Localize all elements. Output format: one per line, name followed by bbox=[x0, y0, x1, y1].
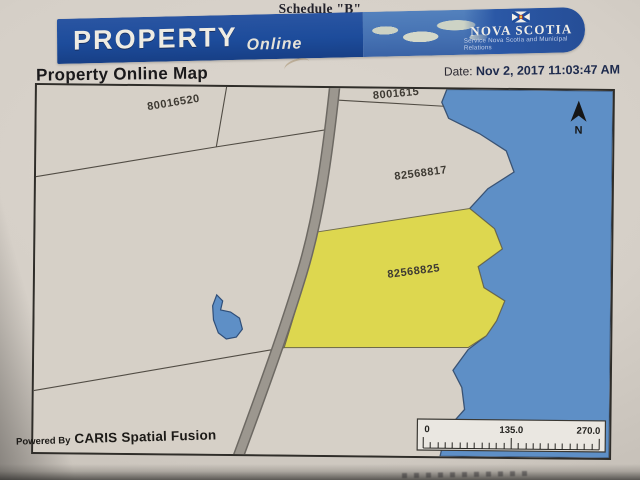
date-label: Date: bbox=[444, 64, 473, 78]
clipped-text-fragment bbox=[402, 471, 534, 478]
date-stamp: Date: Nov 2, 2017 11:03:47 AM bbox=[444, 62, 620, 78]
scale-start-label: 0 bbox=[424, 424, 429, 435]
map-viewport: 80016520 8001615 82568817 82568825 N 0 1… bbox=[31, 83, 615, 460]
scale-bar: 0 135.0 270.0 bbox=[417, 419, 605, 452]
brand-property-wordmark: PROPERTY bbox=[73, 22, 238, 57]
property-map-svg: 80016520 8001615 82568817 82568825 N 0 1… bbox=[33, 85, 613, 458]
org-tagline: Service Nova Scotia and Municipal Relati… bbox=[464, 36, 579, 51]
north-label: N bbox=[574, 125, 582, 137]
date-value: Nov 2, 2017 11:03:47 AM bbox=[476, 62, 620, 78]
nova-scotia-flag-icon bbox=[512, 11, 530, 22]
map-header-row: Property Online Map Date: Nov 2, 2017 11… bbox=[36, 58, 626, 85]
banner-nova-scotia-map-graphic: NOVA SCOTIA Service Nova Scotia and Muni… bbox=[363, 7, 585, 57]
scanned-document-photo: Schedule "B" PROPERTY Online NOVA SCOTIA… bbox=[0, 0, 640, 480]
banner-brand-section: PROPERTY Online bbox=[57, 12, 364, 64]
nova-scotia-org-panel: NOVA SCOTIA Service Nova Scotia and Muni… bbox=[464, 7, 585, 55]
scale-end-label: 270.0 bbox=[577, 426, 601, 437]
credit-prefix: Powered By bbox=[16, 435, 71, 447]
scale-middle-label: 135.0 bbox=[499, 425, 523, 436]
brand-online-wordmark: Online bbox=[247, 35, 303, 59]
credit-name: CARIS Spatial Fusion bbox=[74, 427, 216, 446]
